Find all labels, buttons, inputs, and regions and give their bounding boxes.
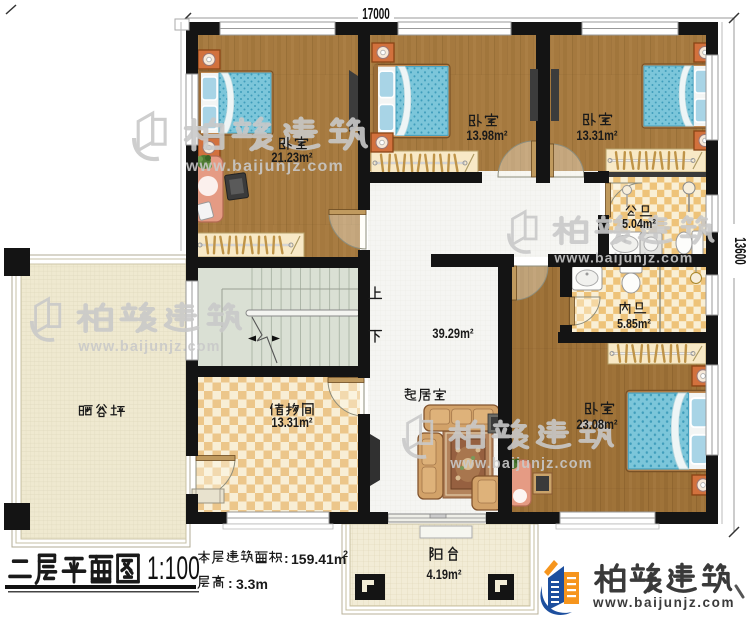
svg-text:21.23m²: 21.23m²: [271, 150, 312, 165]
svg-text:13.31m²: 13.31m²: [271, 415, 312, 430]
svg-text:159.41m: 159.41m: [291, 551, 346, 567]
svg-text:17000: 17000: [362, 5, 390, 23]
svg-text:4.19m²: 4.19m²: [426, 567, 461, 582]
svg-text:39.29m²: 39.29m²: [432, 326, 473, 341]
svg-text:5.85m²: 5.85m²: [617, 316, 651, 331]
svg-text:23.08m²: 23.08m²: [576, 417, 617, 432]
svg-text:13.31m²: 13.31m²: [576, 128, 617, 143]
svg-text:3.3m: 3.3m: [236, 576, 268, 592]
svg-text:5.04m²: 5.04m²: [622, 216, 656, 231]
svg-text:www.baijunjz.com: www.baijunjz.com: [592, 595, 735, 610]
svg-text:1:100: 1:100: [147, 549, 200, 586]
svg-text::: :: [284, 550, 289, 566]
svg-text:13.98m²: 13.98m²: [466, 128, 507, 143]
svg-text::: :: [228, 575, 233, 591]
svg-text:13600: 13600: [731, 237, 749, 265]
svg-text:2: 2: [343, 549, 348, 559]
